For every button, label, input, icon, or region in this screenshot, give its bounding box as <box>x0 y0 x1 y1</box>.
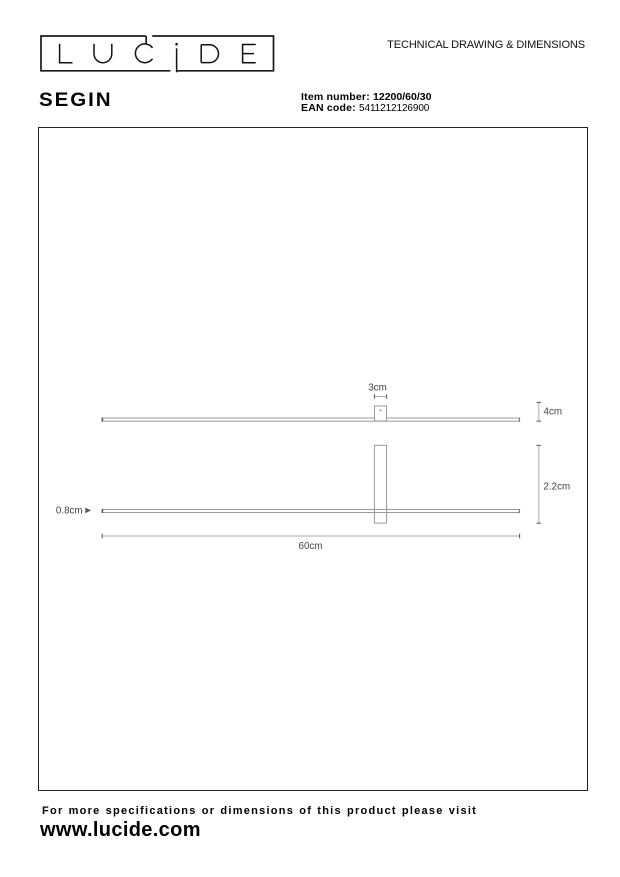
svg-text:2.2cm: 2.2cm <box>544 481 571 492</box>
svg-text:3cm: 3cm <box>368 383 387 394</box>
svg-text:4cm: 4cm <box>544 407 563 418</box>
svg-text:0.8cm: 0.8cm <box>56 506 83 517</box>
svg-text:60cm: 60cm <box>299 541 323 552</box>
